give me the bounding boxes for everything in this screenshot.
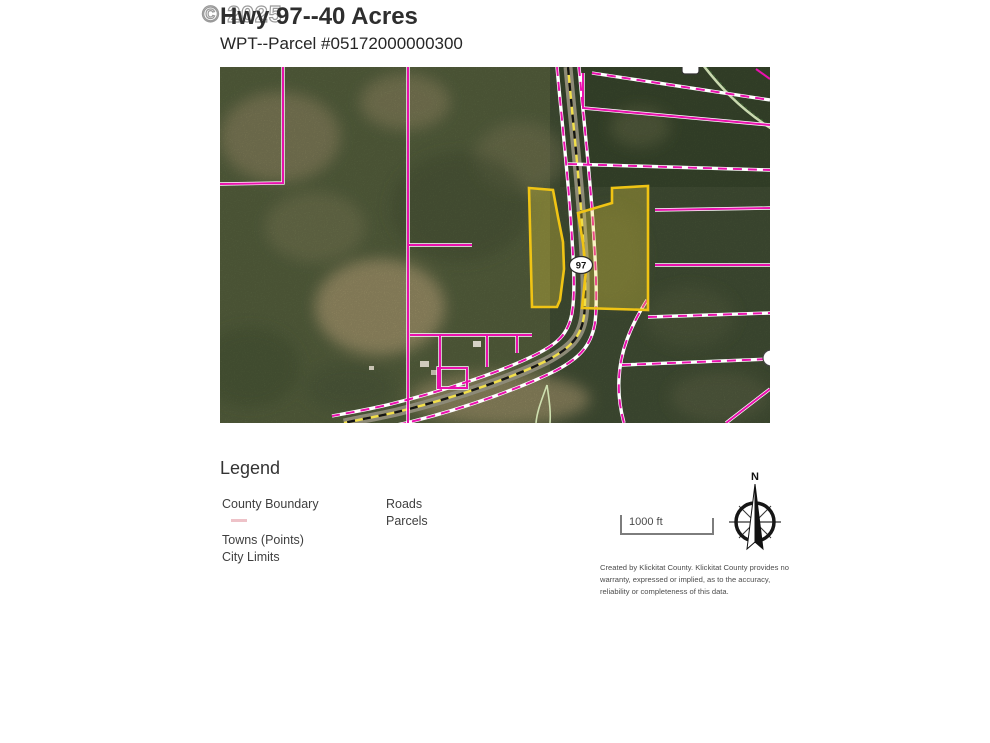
legend-item-county-boundary: County Boundary: [222, 497, 319, 511]
north-arrow: N: [725, 464, 785, 564]
partial-highway-shield-top: [682, 67, 699, 74]
legend-item-roads: Roads: [386, 497, 422, 511]
parcel-number-subtitle: WPT--Parcel #05172000000300: [220, 34, 463, 54]
attribution-line: warranty, expressed or implied, as to th…: [600, 574, 800, 586]
scale-bar: 1000 ft: [620, 515, 714, 535]
attribution-line: Created by Klickitat County. Klickitat C…: [600, 562, 800, 574]
page-title: Hwy 97--40 Acres: [220, 3, 418, 31]
county-boundary-swatch: [231, 519, 247, 522]
scale-bar-label: 1000 ft: [629, 516, 663, 528]
aerial-map-image: 97: [220, 67, 770, 423]
highway-shield-label: 97: [576, 261, 587, 272]
legend-heading: Legend: [220, 458, 280, 479]
highway-97-shield: 97: [570, 257, 593, 274]
legend-item-city-limits: City Limits: [222, 550, 280, 564]
attribution-line: reliability or completeness of this data…: [600, 586, 800, 598]
north-label: N: [751, 471, 759, 483]
parcel-map: 97: [220, 67, 770, 423]
compass-needle-west: [747, 484, 755, 549]
map-attribution: Created by Klickitat County. Klickitat C…: [600, 562, 800, 598]
legend-item-towns-points: Towns (Points): [222, 533, 304, 547]
scale-bar-right-tick: [712, 518, 714, 533]
compass-needle-east: [755, 484, 763, 549]
parcel-report-page: © 2025 Hwy 97--40 Acres WPT--Parcel #051…: [0, 0, 990, 743]
legend-item-parcels: Parcels: [386, 514, 428, 528]
